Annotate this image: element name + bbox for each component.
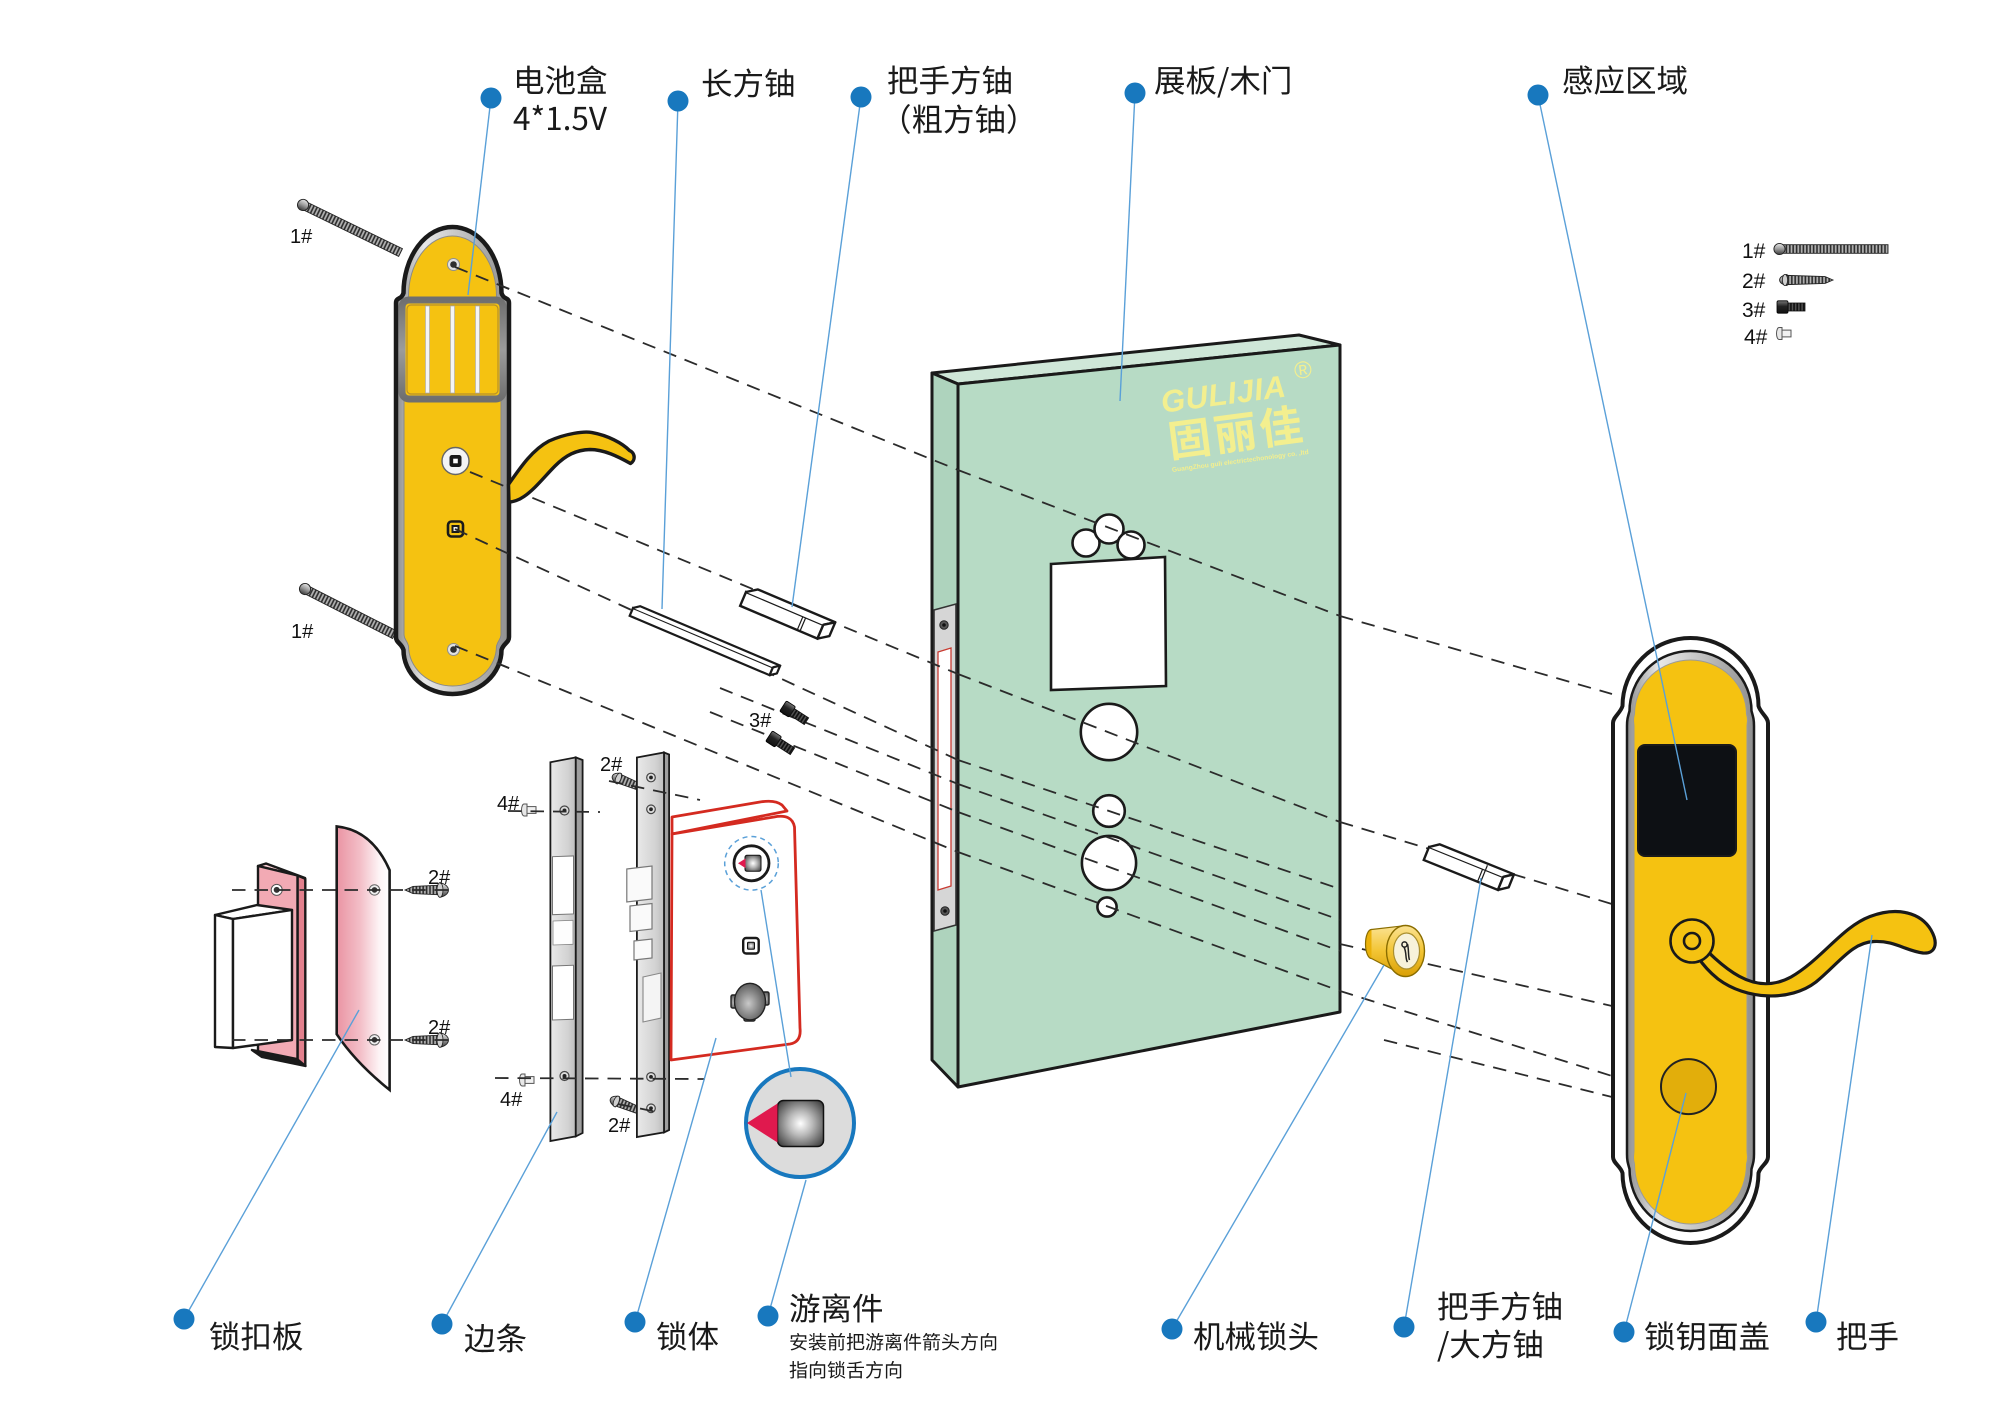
svg-text:1#: 1#	[290, 226, 313, 248]
svg-text:3#: 3#	[1742, 299, 1766, 322]
svg-text:2#: 2#	[1742, 270, 1766, 293]
svg-text:2#: 2#	[428, 867, 451, 889]
svg-text:2#: 2#	[428, 1017, 451, 1039]
svg-text:4#: 4#	[497, 793, 520, 815]
svg-text:2#: 2#	[600, 754, 623, 776]
svg-text:4#: 4#	[500, 1089, 523, 1111]
svg-text:4#: 4#	[1744, 326, 1768, 349]
svg-text:3#: 3#	[749, 710, 772, 732]
svg-text:1#: 1#	[291, 621, 314, 643]
svg-text:1#: 1#	[1742, 240, 1766, 263]
svg-text:2#: 2#	[608, 1115, 631, 1137]
